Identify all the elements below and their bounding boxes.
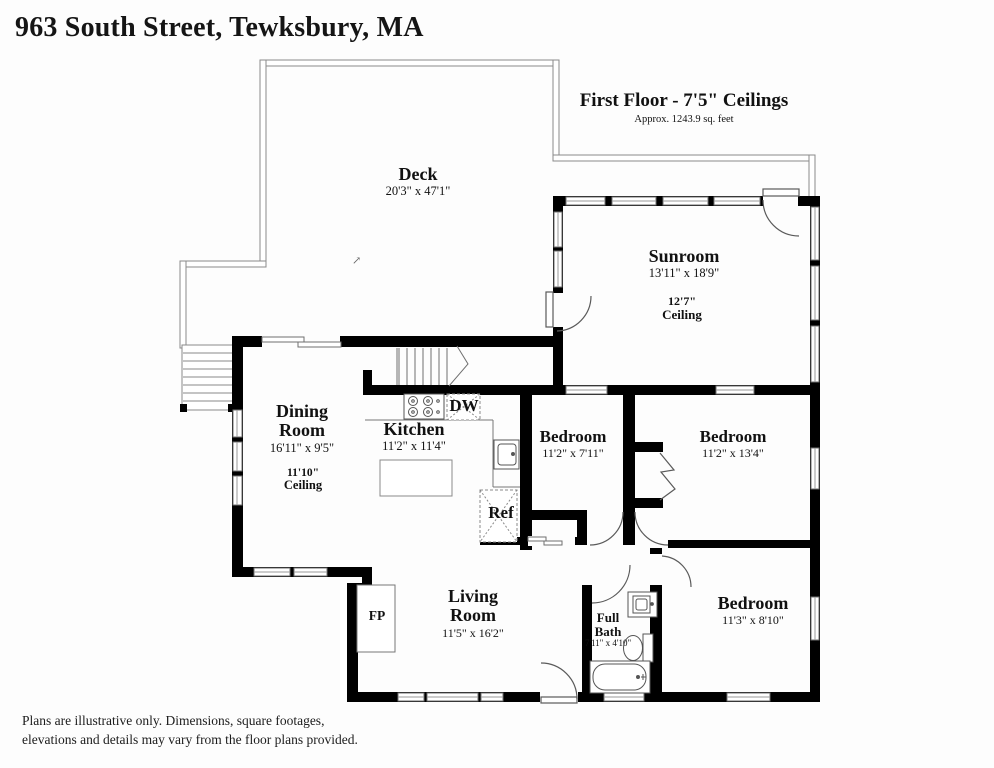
stove [404, 394, 444, 419]
deck-dims: 20'3" x 47'1" [386, 185, 451, 199]
deck-name: Deck [386, 165, 451, 184]
interior-stairs [397, 346, 468, 386]
floor-plan-page: 963 South Street, Tewksbury, MA First Fl… [0, 0, 994, 768]
kitchen-sink [494, 440, 519, 469]
bedroom3-dims: 11'3" x 8'10" [718, 614, 789, 627]
room-label-dining: Dining Room 16'11" x 9'5" [270, 402, 334, 455]
bedroom1-dims: 11'2" x 7'11" [540, 447, 607, 460]
room-label-living: Living Room 11'5" x 16'2" [442, 587, 504, 640]
disclaimer: Plans are illustrative only. Dimensions,… [22, 712, 358, 749]
dishwasher-label: DW [449, 396, 478, 416]
room-label-deck: Deck 20'3" x 47'1" [386, 165, 451, 199]
room-label-sunroom: Sunroom 13'11" x 18'9" [649, 247, 720, 281]
dining-ceiling-note: 11'10" Ceiling [284, 467, 322, 493]
kitchen-island [380, 460, 452, 496]
room-label-bedroom1: Bedroom 11'2" x 7'11" [540, 428, 607, 460]
sunroom-ceiling-note: 12'7" Ceiling [662, 295, 702, 322]
fireplace-label: FP [369, 608, 386, 624]
page-title: 963 South Street, Tewksbury, MA [15, 12, 424, 44]
bedroom3-name: Bedroom [718, 594, 789, 613]
living-name-2: Room [442, 606, 504, 625]
bedroom1-name: Bedroom [540, 428, 607, 446]
deck-stairs [180, 345, 235, 412]
dining-name-1: Dining [270, 402, 334, 421]
bath-name-2: Bath [585, 625, 631, 639]
room-label-bedroom3: Bedroom 11'3" x 8'10" [718, 594, 789, 627]
north-arrow-icon: ↗ [352, 254, 361, 267]
bedroom2-dims: 11'2" x 13'4" [700, 447, 767, 460]
dining-dims: 16'11" x 9'5" [270, 442, 334, 456]
room-label-bath: Full Bath 7'11" x 4'10" [585, 611, 631, 649]
bath-name-1: Full [585, 611, 631, 625]
living-name-1: Living [442, 587, 504, 606]
room-label-kitchen: Kitchen 11'2" x 11'4" [382, 420, 446, 454]
vanity-sink [628, 592, 657, 617]
bath-dims: 7'11" x 4'10" [585, 639, 631, 649]
bathtub [590, 661, 650, 693]
kitchen-dims: 11'2" x 11'4" [382, 440, 446, 454]
floor-header-title: First Floor - 7'5" Ceilings [580, 90, 789, 112]
disclaimer-line-1: Plans are illustrative only. Dimensions,… [22, 712, 358, 731]
kitchen-name: Kitchen [382, 420, 446, 439]
floor-header: First Floor - 7'5" Ceilings Approx. 1243… [580, 90, 789, 125]
closet-bifold-door [660, 453, 675, 500]
living-dims: 11'5" x 16'2" [442, 627, 504, 640]
refrigerator-label: Ref [488, 503, 513, 523]
floor-header-area: Approx. 1243.9 sq. feet [580, 114, 789, 125]
bedroom2-name: Bedroom [700, 428, 767, 446]
disclaimer-line-2: elevations and details may vary from the… [22, 731, 358, 750]
room-label-bedroom2: Bedroom 11'2" x 13'4" [700, 428, 767, 460]
sunroom-name: Sunroom [649, 247, 720, 266]
floor-plan-drawing [0, 0, 994, 768]
sunroom-dims: 13'11" x 18'9" [649, 267, 720, 281]
dining-name-2: Room [270, 421, 334, 440]
